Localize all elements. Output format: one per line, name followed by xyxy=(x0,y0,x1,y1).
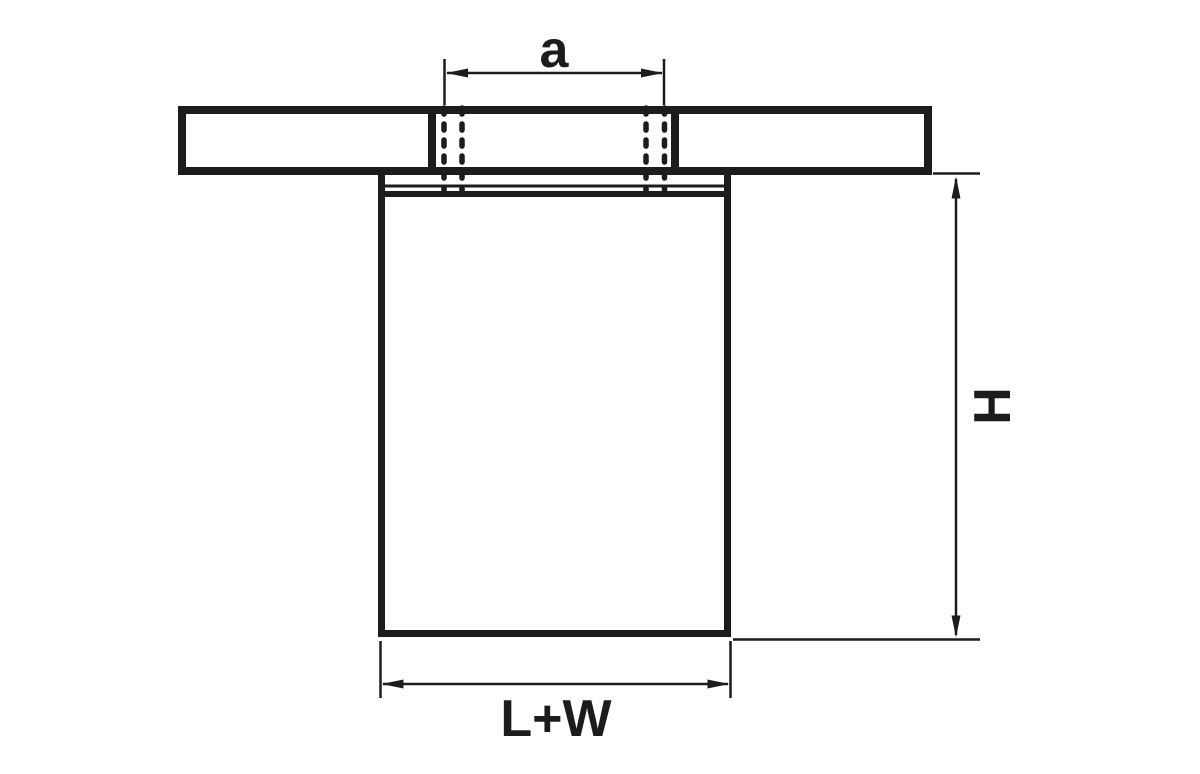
fixture-cross-section-svg: a H L+W xyxy=(0,0,1200,774)
dim-a-arrow-left-icon xyxy=(446,69,468,78)
dim-lw-label: L+W xyxy=(500,690,612,748)
dimension-h: H xyxy=(733,174,1022,640)
dim-lw-arrow-left-icon xyxy=(382,680,404,689)
dim-a-label: a xyxy=(540,21,570,79)
dimension-a: a xyxy=(445,21,665,105)
dim-lw-arrow-right-icon xyxy=(708,680,730,689)
technical-dimension-drawing: a H L+W xyxy=(0,0,1200,774)
dim-h-arrow-top-icon xyxy=(952,177,961,199)
dimension-lw: L+W xyxy=(381,641,731,748)
dim-h-arrow-bottom-icon xyxy=(952,616,961,638)
dim-a-arrow-right-icon xyxy=(641,69,663,78)
fixture-body-outline xyxy=(382,172,728,634)
ceiling-slab xyxy=(182,107,928,174)
ceiling-slab-outline xyxy=(182,110,928,171)
dim-h-label: H xyxy=(964,387,1022,425)
fixture-body xyxy=(382,172,728,634)
